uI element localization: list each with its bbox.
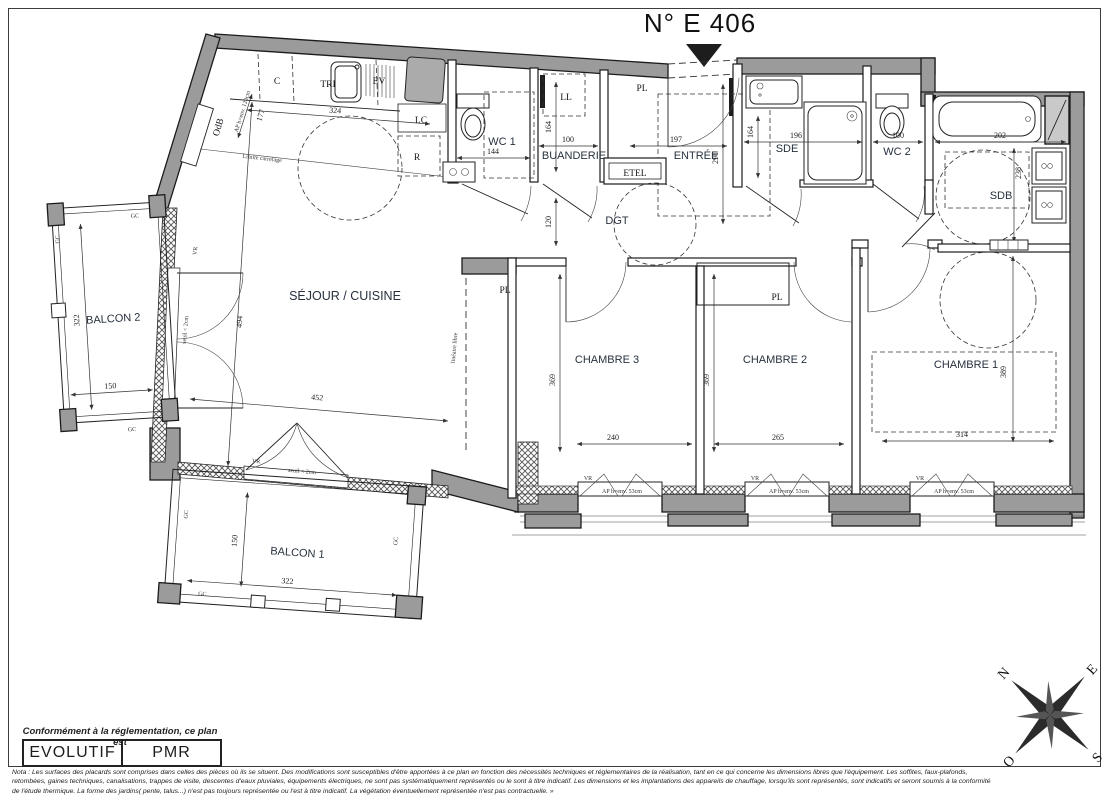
window-vr-label: VR xyxy=(916,476,924,482)
room-label-sdb: SDB xyxy=(990,190,1013,202)
legend-box: EVOLUTIF PMR xyxy=(22,739,222,767)
dim-balcon2-150: 150 xyxy=(104,381,117,391)
dim-494: 494 xyxy=(235,316,245,329)
room-label-sde: SDE xyxy=(776,143,799,155)
buanderie: LL 164 100 BUANDERIE xyxy=(539,74,606,222)
dim-100-buanderie: 100 xyxy=(562,135,574,144)
gc-label: GC xyxy=(131,213,140,219)
gc-label: GC xyxy=(393,537,400,546)
room-label-chambre2: CHAMBRE 2 xyxy=(743,354,807,366)
nota-text: Nota : Les surfaces des placards sont co… xyxy=(12,768,1102,796)
kitchen-r-label: R xyxy=(414,153,421,163)
legend-evolutif: EVOLUTIF xyxy=(24,741,121,765)
legend-pmr: PMR xyxy=(121,741,220,765)
gc-label: GC xyxy=(55,235,61,244)
gc-label: GC xyxy=(198,591,207,598)
entree: PL ETEL 197 291 ENTRÉE xyxy=(604,76,770,224)
dim-144: 144 xyxy=(487,147,499,156)
window-ap-label: AP h=env. 53cm xyxy=(769,489,809,495)
dim-balcon2-322: 322 xyxy=(72,314,82,327)
nota-line-3: de l'étude thermique. La forme des jardi… xyxy=(12,787,1102,796)
wc1: WC 1 144 xyxy=(443,92,534,221)
window-ap-label: AP h=env. 53cm xyxy=(602,489,642,495)
nota-line-1: Nota : Les surfaces des placards sont co… xyxy=(12,768,1102,777)
compass-e-label: E xyxy=(1084,662,1101,678)
ap120-label: AP h=env. 120cm xyxy=(234,90,252,133)
room-label-balcon2: BALCON 2 xyxy=(86,311,141,326)
dim-197: 197 xyxy=(670,135,682,144)
dim-100-wc2: 100 xyxy=(892,131,904,140)
odb-label: OdB xyxy=(212,117,227,137)
compass-n-label: N xyxy=(995,665,1013,683)
kitchen-lc-label: LC xyxy=(415,116,427,126)
dim-314: 314 xyxy=(956,430,968,439)
pl-label-sejour: PL xyxy=(499,286,510,296)
vr-label-bottom: VR xyxy=(252,459,261,466)
window-vr-label: VR xyxy=(584,476,592,482)
dim-265: 265 xyxy=(772,433,784,442)
floor-plan-drawing: VR AP h=env. 53cm VR AP h=env. 53cm VR A… xyxy=(0,0,1109,800)
compass-s-label: S xyxy=(1090,750,1106,766)
chambre1: CHAMBRE 1 389 314 xyxy=(868,248,1056,442)
room-label-sejour: SÉJOUR / CUISINE xyxy=(289,288,401,303)
room-label-balcon1: BALCON 1 xyxy=(270,545,325,561)
ll-label: LL xyxy=(560,93,572,103)
dim-196: 196 xyxy=(790,131,802,140)
dim-389: 389 xyxy=(999,366,1008,378)
dim-369-ch2: 369 xyxy=(702,374,711,386)
sejour: SÉJOUR / CUISINE 494 452 VR seuil < 2cm … xyxy=(177,102,511,478)
entrance-arrow-icon xyxy=(686,44,722,67)
vr-label-left: VR xyxy=(193,246,200,255)
kitchen: C TRI EV LC R Limite carrelage OdB AP h=… xyxy=(200,54,448,220)
kitchen-ev-label: EV xyxy=(373,77,386,87)
dim-177: 177 xyxy=(255,108,267,122)
room-label-chambre3: CHAMBRE 3 xyxy=(575,354,639,366)
window-vr-label: VR xyxy=(751,476,759,482)
wc2: WC 2 100 xyxy=(873,94,924,222)
dim-balcon1-150: 150 xyxy=(230,534,240,547)
gc-label: GC xyxy=(128,427,137,433)
pl-label-entree: PL xyxy=(636,84,647,94)
dim-369-ch3: 369 xyxy=(548,374,557,386)
dim-120: 120 xyxy=(544,216,553,228)
etel-label: ETEL xyxy=(623,169,646,179)
dim-324: 324 xyxy=(329,106,342,116)
room-label-dgt: DGT xyxy=(605,215,629,227)
floor-plan-page: N° E 406 xyxy=(0,0,1109,800)
nota-line-2: retombées, gaines techniques, canalisati… xyxy=(12,777,1102,786)
room-label-wc2: WC 2 xyxy=(883,146,911,158)
window-ap-label: AP h=env. 53cm xyxy=(934,489,974,495)
dim-164-buanderie: 164 xyxy=(544,121,553,133)
dim-balcon1-322: 322 xyxy=(281,576,294,586)
room-label-buanderie: BUANDERIE xyxy=(542,150,606,162)
dim-238: 238 xyxy=(1014,167,1023,179)
dim-240: 240 xyxy=(607,433,619,442)
gc-label: GC xyxy=(184,510,191,519)
dim-164-sde: 164 xyxy=(746,126,755,138)
room-label-entree: ENTRÉE xyxy=(674,149,719,162)
lineaire-libre-label: linéaire libre xyxy=(451,332,460,363)
sde: SDE 164 196 xyxy=(744,76,866,226)
kitchen-c-label: C xyxy=(274,77,280,87)
chambre2: CHAMBRE 2 369 265 PL xyxy=(697,262,852,452)
room-label-chambre1: CHAMBRE 1 xyxy=(934,359,998,371)
kitchen-tri-label: TRI xyxy=(320,80,335,90)
seuil-label-left: seuil < 2cm xyxy=(182,315,190,344)
pl-label-chambre2: PL xyxy=(771,293,782,303)
dim-452: 452 xyxy=(311,393,324,403)
dim-202: 202 xyxy=(994,131,1006,140)
dgt: DGT 120 xyxy=(544,183,696,265)
chambre3: CHAMBRE 3 369 240 xyxy=(548,262,692,452)
